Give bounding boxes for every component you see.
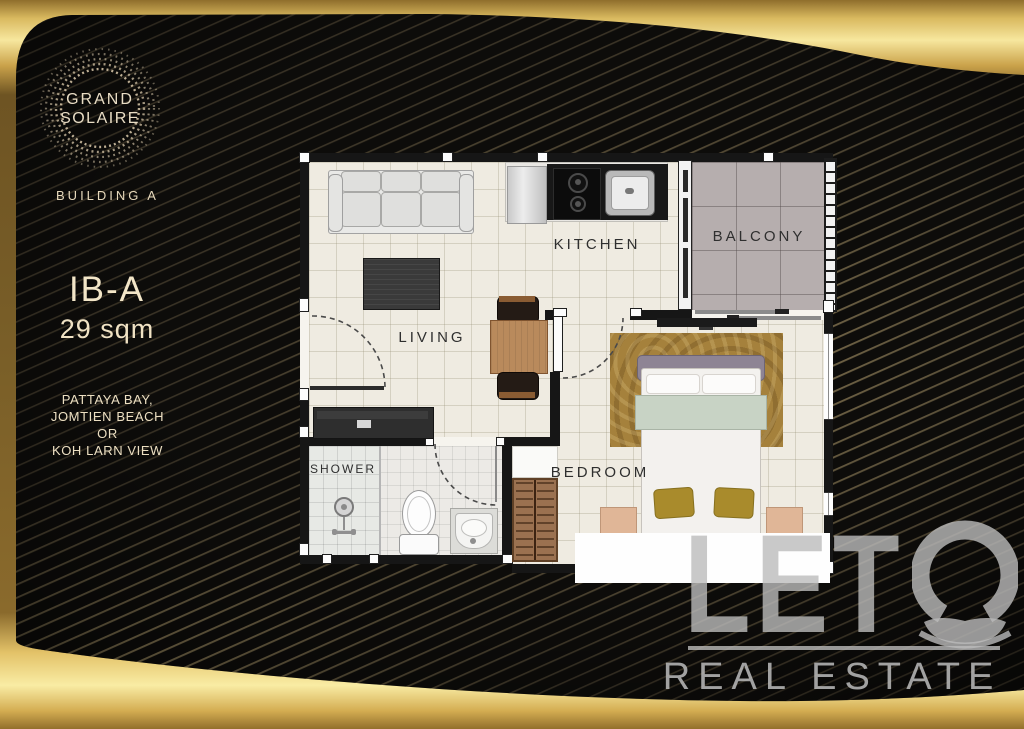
- wall-post: [763, 152, 774, 162]
- view-line-3: OR: [97, 426, 118, 441]
- burner-icon: [570, 196, 586, 212]
- wall-top: [300, 153, 833, 162]
- label-balcony: BALCONY: [699, 228, 819, 245]
- wall-post: [299, 543, 309, 556]
- slider-track: [695, 310, 775, 314]
- bedroom-door-leaf: [553, 315, 563, 372]
- bathroom-door-opening: [433, 437, 497, 446]
- leto-o-wave-icon: [912, 518, 1018, 654]
- wall-post: [299, 298, 309, 312]
- dining-table: [490, 320, 548, 374]
- burner-icon: [568, 173, 588, 193]
- sofa-seat-cushion: [421, 192, 461, 227]
- label-bedroom: BEDROOM: [540, 464, 660, 481]
- wall-divider-stub: [550, 372, 560, 446]
- label-living: LIVING: [372, 329, 492, 346]
- unit-code: IB-A: [22, 270, 192, 310]
- wall-closet-left: [502, 437, 512, 564]
- wall-post: [442, 152, 453, 162]
- fridge: [507, 166, 547, 224]
- wall-post: [299, 426, 309, 438]
- toilet-seat: [407, 496, 431, 532]
- label-kitchen: KITCHEN: [537, 236, 657, 253]
- bed-pillow: [702, 374, 756, 394]
- coffee-table: [363, 258, 440, 310]
- entry-opening: [300, 312, 309, 388]
- wardrobe-hangers: [516, 482, 533, 558]
- flyer-canvas: GRAND SOLAIRE BUILDING A IB-A 29 sqm PAT…: [0, 0, 1024, 729]
- shower-head-center: [341, 504, 347, 510]
- label-shower: SHOWER: [303, 462, 383, 476]
- sofa-armrest: [328, 174, 343, 232]
- grand-solaire-logo: GRAND SOLAIRE: [38, 46, 162, 170]
- tv-console-detail: [317, 411, 428, 419]
- valve-handle: [332, 529, 337, 535]
- leto-tagline: REAL ESTATE: [640, 656, 1024, 699]
- wall-post: [630, 308, 642, 317]
- dining-chair-back: [499, 392, 535, 398]
- wall-post: [823, 300, 834, 313]
- leto-divider: [688, 646, 1000, 650]
- leto-wordmark-letters: LET: [684, 514, 904, 654]
- balcony-railing: [824, 158, 837, 312]
- leto-watermark: LET REAL ESTATE: [640, 514, 1024, 710]
- wall-post: [537, 152, 548, 162]
- wardrobe-hangers: [537, 482, 554, 558]
- wall-post: [553, 308, 567, 317]
- building-label: BUILDING A: [30, 188, 185, 203]
- sofa-seat-cushion: [341, 192, 381, 227]
- glass-pane: [683, 248, 688, 298]
- dining-chair-back: [499, 296, 535, 302]
- view-line-4: KOH LARN VIEW: [52, 443, 163, 458]
- sofa-back-cushion: [381, 171, 421, 192]
- wall-post: [299, 388, 309, 401]
- shower-pipe: [343, 517, 345, 530]
- glass-pane: [683, 170, 688, 192]
- logo-word-grand: GRAND: [66, 91, 134, 108]
- sink-drain: [625, 188, 634, 194]
- toilet-tank: [399, 534, 439, 555]
- basin-bowl: [461, 519, 487, 537]
- logo-word-solaire: SOLAIRE: [60, 110, 140, 127]
- wardrobe-rod: [534, 480, 536, 560]
- wall-tv: [657, 318, 757, 327]
- sofa-back-cushion: [421, 171, 461, 192]
- wall-post: [299, 152, 310, 163]
- window: [824, 333, 833, 420]
- view-line-2: JOMTIEN BEACH: [51, 409, 164, 424]
- wall-tv-bracket: [699, 327, 713, 330]
- valve-handle: [351, 529, 356, 535]
- tv-console-detail: [357, 420, 371, 428]
- view-line-1: PATTAYA BAY,: [62, 392, 154, 407]
- bed-pillow: [646, 374, 700, 394]
- wall-post: [369, 554, 379, 564]
- wall-post: [322, 554, 332, 564]
- wall-left-upper: [300, 153, 309, 312]
- view-description: PATTAYA BAY, JOMTIEN BEACH OR KOH LARN V…: [15, 391, 200, 459]
- sofa-seat-cushion: [381, 192, 421, 227]
- basin-tap: [470, 538, 476, 544]
- unit-area: 29 sqm: [22, 314, 192, 345]
- sofa-armrest: [459, 174, 474, 232]
- slider-stop: [775, 309, 789, 314]
- glass-pane: [683, 198, 688, 242]
- bed-runner-blanket: [635, 395, 767, 430]
- sofa-back-cushion: [341, 171, 381, 192]
- wall-post: [496, 437, 505, 446]
